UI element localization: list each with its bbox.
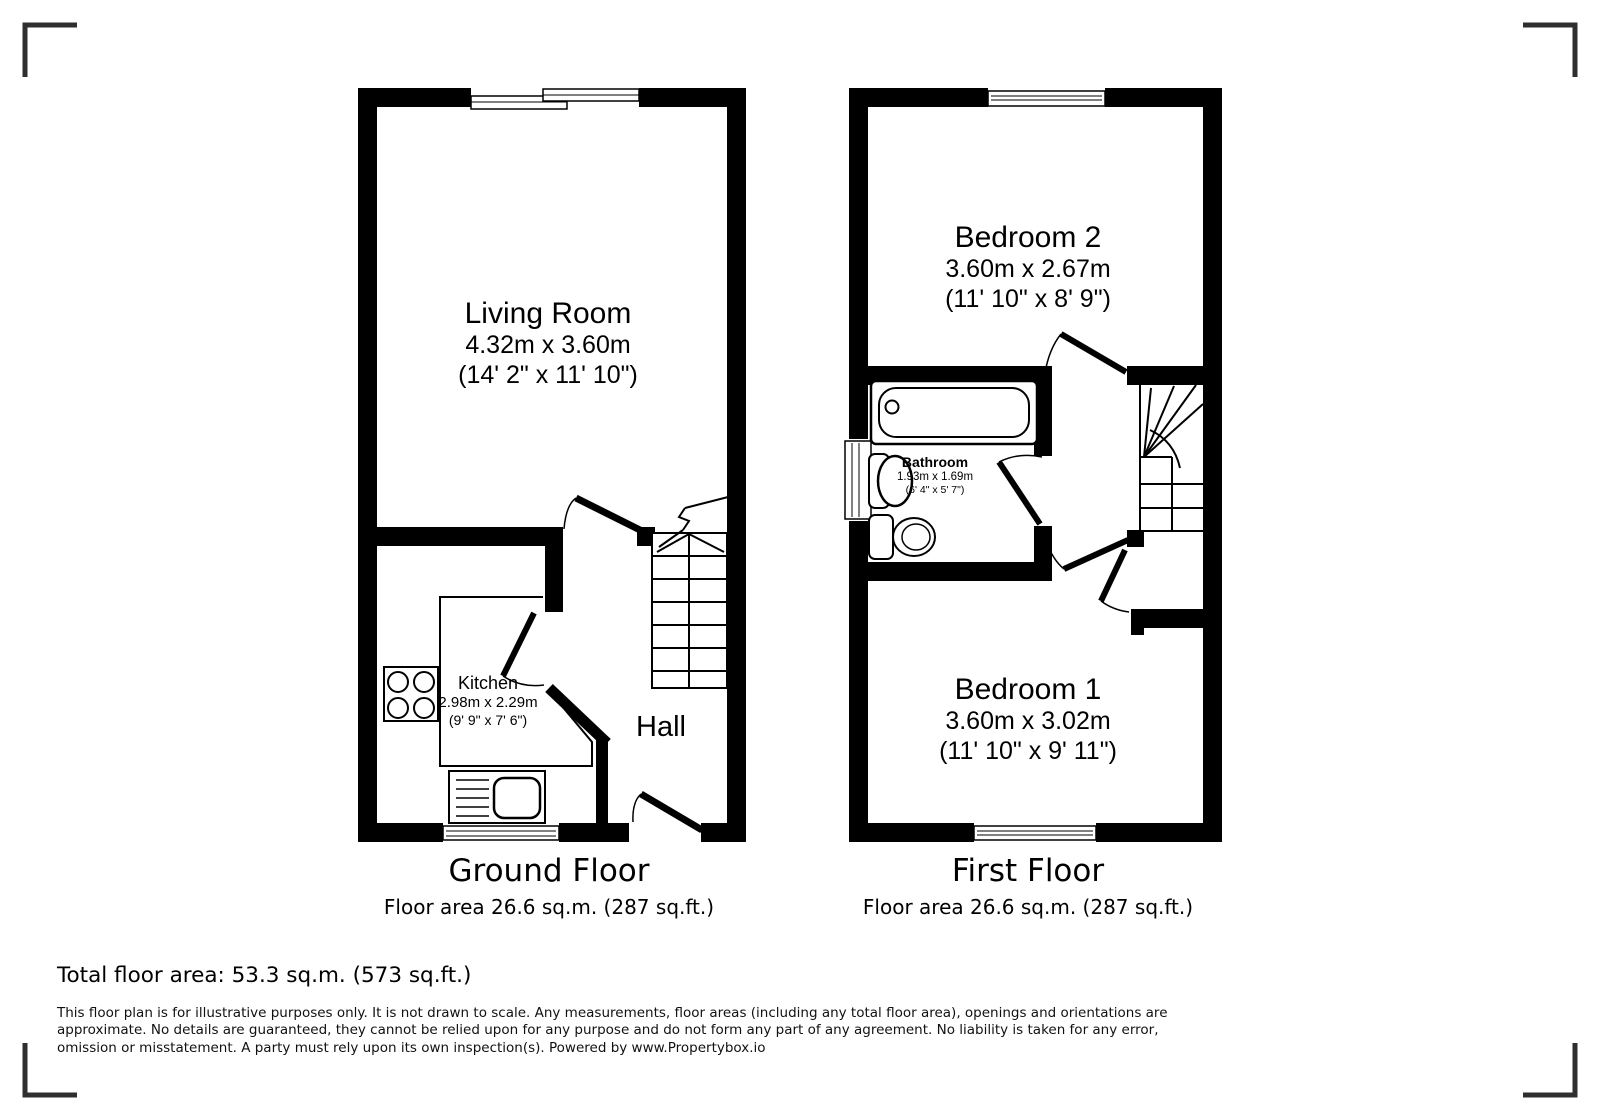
first-staircase-icon	[1140, 385, 1203, 531]
corner-mark-top-left-icon	[25, 25, 77, 77]
bathroom-door-icon	[999, 455, 1042, 524]
bedroom1-metric: 3.60m x 3.02m	[939, 707, 1117, 737]
bathroom-label: Bathroom 1.93m x 1.69m (6' 4" x 5' 7")	[897, 454, 973, 496]
living-room-label: Living Room 4.32m x 3.60m (14' 2" x 11' …	[458, 296, 638, 390]
bathroom-imperial: (6' 4" x 5' 7")	[897, 484, 973, 496]
bedroom1-imperial: (11' 10" x 9' 11")	[939, 737, 1117, 767]
bedroom2-window-icon	[988, 88, 1105, 107]
kitchen-label: Kitchen 2.98m x 2.29m (9' 9" x 7' 6")	[438, 673, 537, 728]
bedroom1-name: Bedroom 1	[939, 672, 1117, 707]
living-room-metric: 4.32m x 3.60m	[458, 331, 638, 361]
disclaimer-line-1: This floor plan is for illustrative purp…	[57, 1005, 1168, 1022]
corner-marks	[25, 25, 1575, 1095]
living-room-imperial: (14' 2" x 11' 10")	[458, 361, 638, 391]
disclaimer-line-3: omission or misstatement. A party must r…	[57, 1040, 1168, 1057]
hall-angled-wall	[549, 688, 607, 743]
corner-mark-bottom-right-icon	[1523, 1043, 1575, 1095]
floor-plan-canvas	[0, 0, 1600, 1119]
ground-outer-walls	[358, 88, 746, 842]
floorplan-page: Living Room 4.32m x 3.60m (14' 2" x 11' …	[0, 0, 1600, 1119]
bedroom2-imperial: (11' 10" x 8' 9")	[945, 285, 1111, 315]
bedroom1-label: Bedroom 1 3.60m x 3.02m (11' 10" x 9' 11…	[939, 672, 1117, 766]
hall-label: Hall	[636, 710, 686, 744]
disclaimer-line-2: approximate. No details are guaranteed, …	[57, 1022, 1168, 1039]
living-room-door-icon	[564, 498, 640, 530]
bathroom-window-icon	[845, 439, 871, 521]
bathroom-name: Bathroom	[897, 454, 973, 471]
kitchen-imperial: (9' 9" x 7' 6")	[438, 712, 537, 729]
ground-staircase-icon	[652, 533, 727, 688]
bedroom2-label: Bedroom 2 3.60m x 2.67m (11' 10" x 8' 9"…	[945, 220, 1111, 314]
living-room-window-icon	[471, 88, 639, 109]
bathtub-icon	[871, 381, 1037, 444]
living-room-name: Living Room	[458, 296, 638, 331]
hall-name: Hall	[636, 710, 686, 744]
corner-mark-top-right-icon	[1523, 25, 1575, 77]
kitchen-sink-icon	[449, 771, 545, 823]
hob-icon	[384, 667, 438, 721]
first-floor-title: First Floor	[952, 853, 1104, 889]
ground-floor-title: Ground Floor	[448, 853, 649, 889]
kitchen-metric: 2.98m x 2.29m	[438, 694, 537, 712]
ground-floor-plan	[358, 88, 746, 842]
kitchen-window-icon	[443, 823, 559, 842]
bedroom2-metric: 3.60m x 2.67m	[945, 255, 1111, 285]
bedroom2-name: Bedroom 2	[945, 220, 1111, 255]
total-floor-area: Total floor area: 53.3 sq.m. (573 sq.ft.…	[57, 963, 471, 988]
bedroom1-window-icon	[974, 823, 1096, 842]
kitchen-name: Kitchen	[438, 673, 537, 694]
entrance-door-icon	[629, 794, 702, 842]
bedroom2-door-icon	[1045, 334, 1126, 373]
first-floor-area: Floor area 26.6 sq.m. (287 sq.ft.)	[863, 895, 1193, 919]
disclaimer-text: This floor plan is for illustrative purp…	[57, 1005, 1168, 1057]
bedroom1-door-icon	[1101, 550, 1129, 612]
bathroom-metric: 1.93m x 1.69m	[897, 471, 973, 485]
toilet-icon	[869, 515, 935, 559]
ground-floor-area: Floor area 26.6 sq.m. (287 sq.ft.)	[384, 895, 714, 919]
